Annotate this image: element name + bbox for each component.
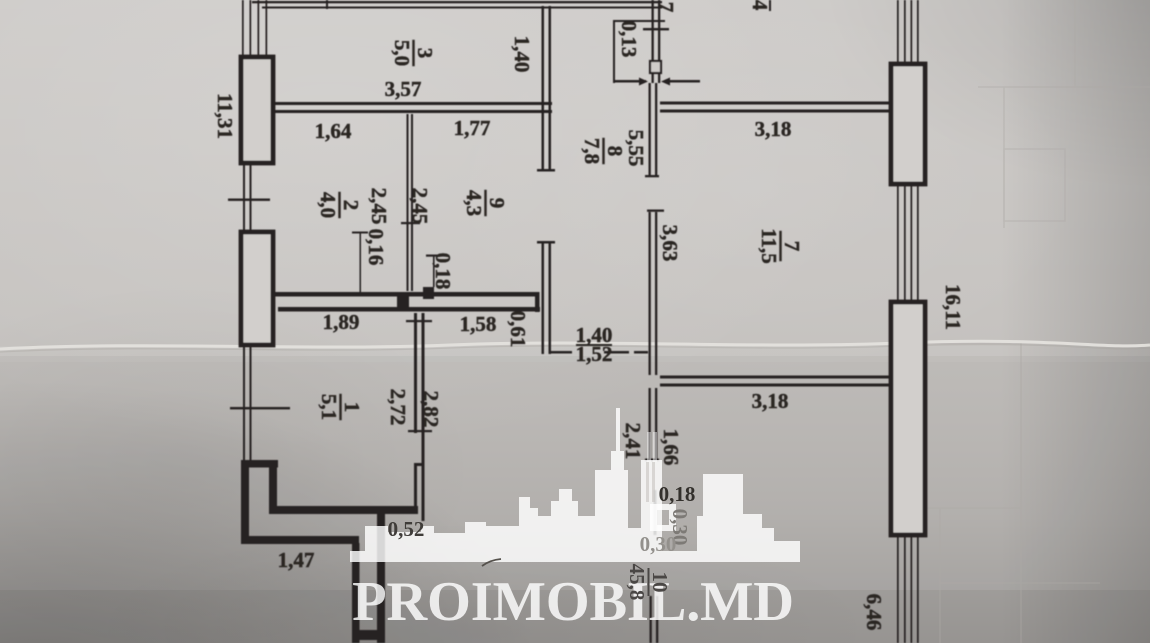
svg-text:0,30: 0,30 [640,532,677,556]
svg-text:3,57: 3,57 [385,77,422,101]
svg-text:1: 1 [340,402,364,413]
svg-text:5,0: 5,0 [390,40,414,66]
svg-text:0,16: 0,16 [364,229,388,266]
svg-text:2,45: 2,45 [367,188,391,225]
svg-text:PROIMOBIL.MD: PROIMOBIL.MD [352,571,794,633]
svg-text:2: 2 [339,200,363,211]
svg-text:1,58: 1,58 [460,312,497,336]
svg-text:2,72: 2,72 [386,389,410,426]
svg-text:2,82: 2,82 [419,391,443,428]
svg-text:4: 4 [748,0,772,11]
svg-text:45,8: 45,8 [625,564,649,601]
svg-text:3,18: 3,18 [755,117,792,141]
svg-text:1,77: 1,77 [454,116,491,140]
svg-text:1,64: 1,64 [315,119,352,143]
svg-text:11,5: 11,5 [757,228,781,264]
svg-text:7,8: 7,8 [580,138,604,164]
svg-text:5,1: 5,1 [317,394,341,420]
svg-text:11,31: 11,31 [213,93,237,139]
svg-text:10: 10 [648,572,672,593]
svg-text:16,11: 16,11 [941,284,965,330]
svg-text:2,41: 2,41 [621,423,645,460]
svg-text:2,45: 2,45 [408,188,432,225]
svg-text:0,61: 0,61 [506,311,530,348]
svg-text:7: 7 [654,2,678,13]
svg-text:4,0: 4,0 [316,192,340,218]
svg-text:1,66: 1,66 [659,429,683,466]
svg-text:3: 3 [413,48,437,59]
svg-text:0,18: 0,18 [431,253,455,290]
svg-text:9: 9 [485,198,509,209]
svg-text:1,40: 1,40 [510,36,534,73]
svg-text:6,46: 6,46 [862,594,886,631]
svg-text:8: 8 [603,146,627,157]
svg-text:3,18: 3,18 [752,389,789,413]
svg-text:0,18: 0,18 [659,482,696,506]
svg-text:1,47: 1,47 [278,548,315,572]
svg-text:3,63: 3,63 [658,225,682,262]
svg-text:0,52: 0,52 [388,517,425,541]
svg-text:1,52: 1,52 [576,342,613,366]
svg-text:4,3: 4,3 [462,190,486,216]
svg-text:7: 7 [780,241,804,252]
svg-text:0,13: 0,13 [617,21,641,58]
svg-text:1,89: 1,89 [323,310,360,334]
